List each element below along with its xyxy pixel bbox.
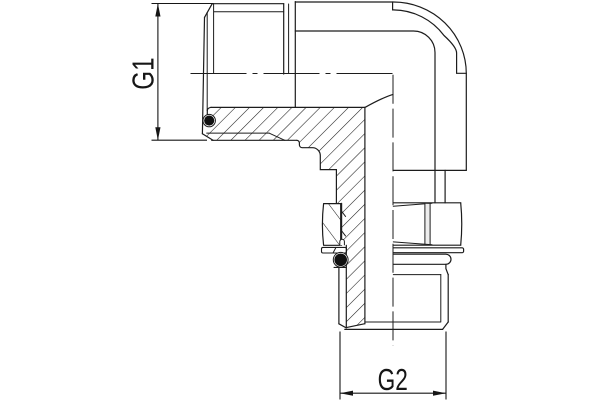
svg-text:G1: G1 — [125, 57, 160, 89]
svg-text:G2: G2 — [378, 361, 408, 396]
